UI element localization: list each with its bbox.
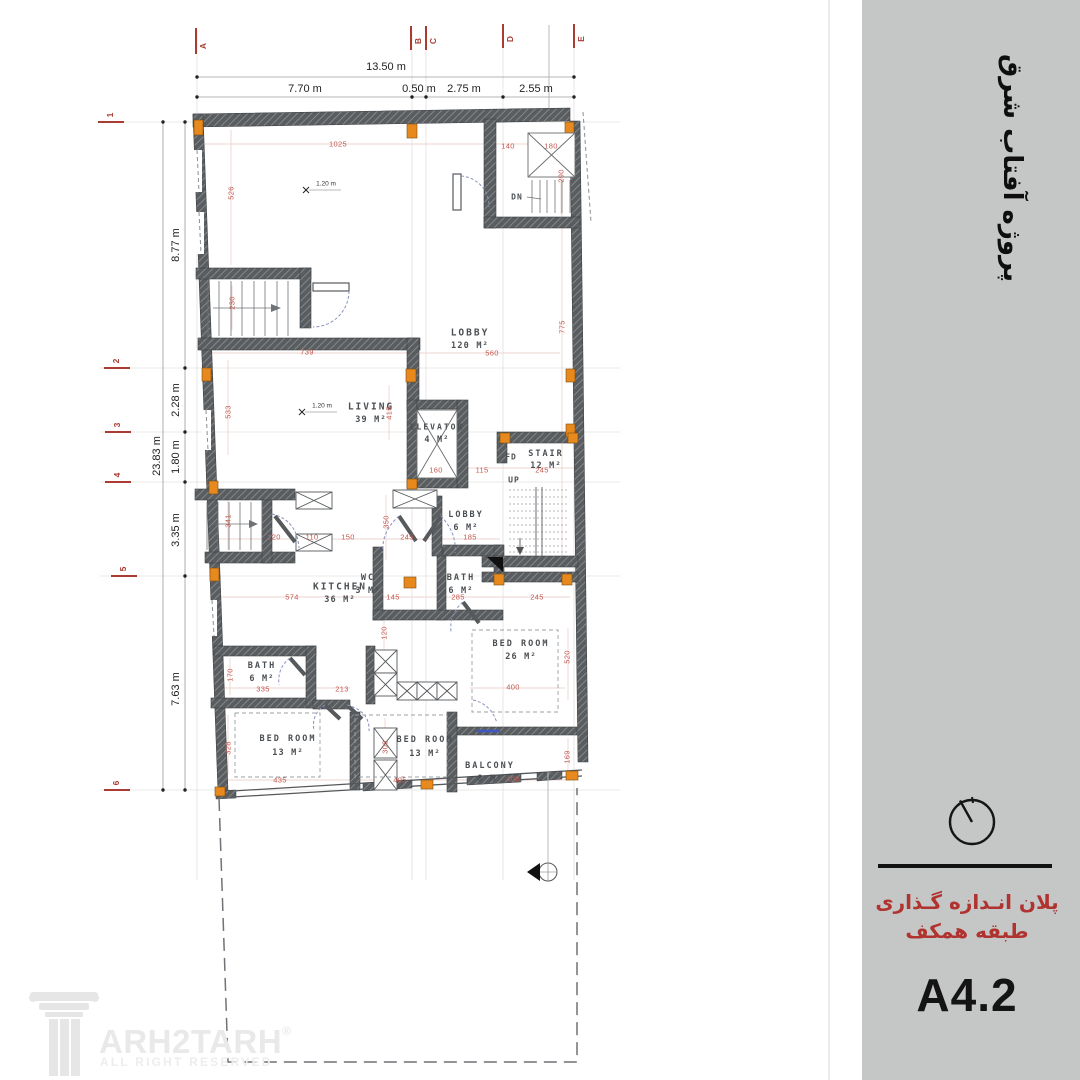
red-dim: 213	[335, 685, 348, 694]
room-lobby-small-area: 6 M²	[453, 523, 478, 533]
stair-dn-label: DN	[511, 193, 523, 202]
dim-top-seg3: 2.75 m	[447, 83, 481, 95]
red-dim: 169	[563, 750, 572, 763]
room-wc-area: 3 M²	[355, 586, 380, 596]
red-dim: 140	[501, 142, 514, 151]
red-dim: 160	[429, 466, 442, 475]
plan-caption-line2: طبقه همکف	[905, 919, 1028, 943]
red-dim: 180	[544, 142, 557, 151]
title-block-sidebar	[862, 0, 1080, 1080]
grid-number-3: 3	[112, 423, 122, 428]
red-dim: 120	[380, 626, 389, 639]
dim-top-seg4: 2.55 m	[519, 83, 553, 95]
room-stair: STAIR	[528, 449, 564, 459]
stair-upper-left	[208, 281, 288, 336]
grid-number-4: 4	[112, 473, 122, 478]
room-balcony-area: 8 M²	[477, 774, 502, 784]
property-boundary	[219, 788, 577, 1062]
red-dim: 520	[563, 650, 572, 663]
red-dim: 115	[476, 466, 489, 475]
red-dim: 405	[393, 776, 406, 785]
red-dim: 150	[341, 533, 354, 542]
red-dim: 170	[226, 668, 235, 681]
stair-up-label: UP	[508, 476, 520, 485]
red-dim: 400	[506, 775, 519, 784]
room-wc: WC	[361, 573, 375, 583]
room-bedroom-26-area: 26 M²	[505, 652, 537, 662]
grid-number-6: 6	[111, 781, 121, 786]
sheet: 13.50 m 7.70 m 0.50 m 2.75 m 2.55 m 23.8…	[0, 0, 1080, 1080]
grid-number-5: 5	[118, 567, 128, 572]
room-balcony: BALCONY	[465, 761, 515, 771]
room-bedroom-13-right-area: 13 M²	[409, 749, 441, 759]
red-dim: 120	[267, 533, 280, 542]
red-dim: 308	[381, 740, 390, 753]
grid-letter-c: C	[428, 38, 438, 44]
red-dim: 145	[386, 593, 399, 602]
room-elevator-area: 4 M²	[424, 435, 449, 445]
red-dim: 574	[285, 593, 298, 602]
plan-caption-line1: پلان انـدازه گـذاری	[875, 890, 1058, 914]
red-dim: 400	[506, 683, 519, 692]
room-elevator: ELEVATOR	[410, 423, 465, 432]
room-lobby-main: LOBBY	[451, 328, 490, 339]
red-dim: 245	[530, 593, 543, 602]
shaft-top-right	[528, 133, 575, 177]
red-dim: 341	[224, 514, 233, 527]
room-bath-left-area: 6 M²	[249, 674, 274, 684]
stair-main	[509, 487, 569, 556]
column-logo-icon	[26, 986, 106, 1078]
red-dim: 328	[224, 741, 233, 754]
red-dim: 560	[485, 349, 498, 358]
room-bedroom-13-right: BED ROOM	[397, 735, 454, 745]
room-bedroom-13-left-area: 13 M²	[272, 748, 304, 758]
room-lobby-small: LOBBY	[448, 510, 484, 520]
dim-top-seg2: 0.50 m	[402, 83, 436, 95]
grid-letter-a: A	[198, 43, 208, 49]
dim-total-height: 23.83 m	[151, 436, 163, 476]
grid-letter-b: B	[413, 38, 423, 44]
room-living-area: 39 M²	[355, 415, 387, 425]
room-lobby-main-area: 120 M²	[451, 341, 489, 351]
dim-left-seg4: 3.35 m	[170, 513, 182, 547]
stair-down-top-right	[527, 180, 570, 213]
red-dim: 435	[273, 776, 286, 785]
red-dim: 185	[463, 533, 476, 542]
red-dim: 350	[382, 515, 391, 528]
red-dim: 526	[227, 186, 236, 199]
registered-mark: ®	[282, 1024, 291, 1038]
dim-left-seg1: 8.77 m	[170, 228, 182, 262]
dim-left-seg3: 1.80 m	[170, 440, 182, 474]
brand-tagline: ALL RIGHT RESERVED	[100, 1055, 273, 1069]
room-bath-left: BATH	[248, 661, 276, 671]
dim-top-seg1: 7.70 m	[288, 83, 322, 95]
grid-letter-e: E	[576, 36, 586, 42]
red-dim: 533	[224, 405, 233, 418]
red-dim: 110	[306, 533, 319, 542]
grid-letter-d: D	[505, 36, 515, 42]
project-title: پروژه آفتاب شرق	[997, 54, 1027, 282]
sheet-number: A4.2	[916, 968, 1017, 1022]
spot-level-2: 1.20 m	[312, 403, 332, 410]
spot-level-1: 1.20 m	[316, 181, 336, 188]
dim-left-seg2: 2.28 m	[170, 383, 182, 417]
red-dim: 245	[535, 466, 548, 475]
grid-number-2: 2	[111, 359, 121, 364]
red-dim: 1025	[329, 140, 347, 149]
red-dim: 230	[228, 296, 237, 309]
stair-fd-label: FD	[505, 453, 517, 462]
dim-total-width: 13.50 m	[366, 61, 406, 73]
title-block-divider	[878, 864, 1052, 868]
room-bedroom-13-left: BED ROOM	[260, 734, 317, 744]
room-bedroom-26: BED ROOM	[493, 639, 550, 649]
grid-number-1: 1	[105, 113, 115, 118]
red-dim: 335	[256, 685, 269, 694]
dim-left-seg5: 7.63 m	[170, 672, 182, 706]
room-bath-right: BATH	[447, 573, 475, 583]
red-dim: 415	[385, 406, 394, 419]
red-dim: 775	[558, 320, 567, 333]
room-kitchen-area: 36 M²	[324, 595, 356, 605]
north-indicator-icon	[937, 787, 1007, 857]
red-dim: 245	[400, 533, 413, 542]
red-dim: 739	[300, 348, 313, 357]
bottom-rail	[216, 770, 582, 799]
red-dim: 290	[557, 169, 566, 182]
red-dim: 285	[451, 593, 464, 602]
